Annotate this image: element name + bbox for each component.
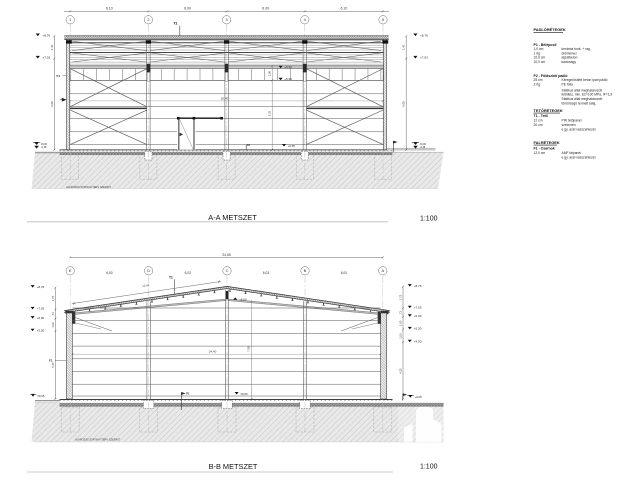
svg-text:1,43: 1,43 — [402, 44, 406, 50]
svg-text:1,00: 1,00 — [398, 320, 402, 326]
svg-text:F1: F1 — [49, 359, 53, 363]
svg-text:,73: ,73 — [51, 312, 55, 316]
svg-text:TETŐRÉTEGEK: TETŐRÉTEGEK — [534, 108, 563, 113]
svg-text:+7,03: +7,03 — [414, 306, 422, 310]
svg-text:24,40: 24,40 — [209, 350, 217, 354]
svg-text:P2 - Földszinti padló: P2 - Földszinti padló — [534, 74, 568, 78]
svg-text:24,65: 24,65 — [222, 253, 231, 257]
svg-text:AMF falpanel: AMF falpanel — [562, 151, 582, 155]
svg-text:B: B — [304, 268, 307, 273]
svg-text:1,00: 1,00 — [398, 333, 402, 339]
svg-text:kavicságy: kavicságy — [562, 60, 577, 64]
svg-text:1,00: 1,00 — [51, 322, 55, 328]
svg-text:feltöltés, min. E2=100 MPa, tF: feltöltés, min. E2=100 MPa, tF=1,9 — [562, 92, 613, 96]
svg-text:1,00: 1,00 — [268, 70, 272, 76]
svg-text:+6,30: +6,30 — [284, 65, 292, 69]
svg-text:6,03: 6,03 — [263, 271, 270, 275]
svg-text:e.gy. acél vázszerkezet: e.gy. acél vázszerkezet — [562, 127, 596, 131]
svg-text:12 cm: 12 cm — [534, 118, 543, 122]
svg-text:ALAPOZÁS STATIKAI TERV SZERINT: ALAPOZÁS STATIKAI TERV SZERINT — [75, 438, 120, 442]
svg-text:A: A — [381, 268, 384, 273]
svg-text:F1: F1 — [57, 74, 61, 78]
svg-text:+0,05: +0,05 — [288, 144, 296, 148]
svg-text:20 cm: 20 cm — [534, 123, 543, 127]
svg-text:4,25: 4,25 — [398, 368, 402, 374]
svg-text:6,08: 6,08 — [50, 101, 54, 107]
svg-text:6,03: 6,03 — [185, 271, 192, 275]
svg-text:+8,76: +8,76 — [37, 285, 45, 289]
svg-text:±0,00: ±0,00 — [240, 392, 247, 396]
svg-text:A-A METSZET: A-A METSZET — [208, 213, 257, 222]
svg-text:6,00: 6,00 — [341, 271, 348, 275]
svg-text:6,00: 6,00 — [106, 271, 113, 275]
svg-text:+6,30: +6,30 — [37, 316, 45, 320]
svg-text:+0,05: +0,05 — [415, 395, 423, 399]
svg-text:B-B METSZET: B-B METSZET — [209, 462, 258, 471]
svg-text:D: D — [147, 268, 150, 273]
svg-text:25 cm: 25 cm — [534, 78, 543, 82]
svg-text:+8,76: +8,76 — [420, 33, 428, 37]
svg-text:-0,38: -0,38 — [420, 146, 426, 149]
svg-text:1:100: 1:100 — [420, 215, 438, 222]
svg-text:,73: ,73 — [398, 311, 402, 315]
svg-text:6.00: 6.00 — [262, 7, 269, 11]
svg-text:2 rtg: 2 rtg — [534, 83, 541, 87]
svg-text:6.10: 6.10 — [106, 7, 113, 11]
svg-text:10,0 cm: 10,0 cm — [534, 60, 546, 64]
svg-text:T1 - Tető: T1 - Tető — [534, 114, 548, 118]
svg-text:T1: T1 — [173, 22, 177, 26]
svg-text:5,25: 5,25 — [268, 110, 272, 116]
svg-text:+5,30: +5,30 — [414, 327, 422, 331]
svg-text:5,25: 5,25 — [51, 362, 55, 368]
svg-text:+5,30: +5,30 — [37, 329, 45, 333]
svg-text:1,73: 1,73 — [398, 294, 402, 300]
svg-text:+6,30: +6,30 — [414, 314, 422, 318]
svg-text:szelemen: szelemen — [562, 123, 576, 127]
svg-text:E: E — [69, 268, 72, 273]
svg-text:PIR tetőpanel: PIR tetőpanel — [562, 118, 582, 122]
svg-text:+8,76: +8,76 — [42, 33, 50, 37]
svg-text:ALAPOZÁS STATIKAI TERV SZERINT: ALAPOZÁS STATIKAI TERV SZERINT — [66, 185, 111, 189]
svg-text:6.00: 6.00 — [184, 7, 191, 11]
svg-text:5: 5 — [382, 17, 384, 22]
svg-text:+8,76: +8,76 — [414, 284, 422, 288]
svg-text:C: C — [226, 268, 229, 273]
svg-text:tömörségű termett talaj,: tömörségű termett talaj, — [562, 102, 597, 106]
svg-text:6.10: 6.10 — [340, 7, 347, 11]
svg-text:12,0 cm: 12,0 cm — [534, 151, 546, 155]
svg-text:6,08: 6,08 — [402, 101, 406, 107]
svg-text:+7,03: +7,03 — [37, 307, 45, 311]
svg-text:+7,03: +7,03 — [420, 56, 428, 60]
svg-text:F1 - Csarnok: F1 - Csarnok — [534, 147, 555, 151]
svg-text:1,73: 1,73 — [51, 295, 55, 301]
svg-text:3: 3 — [226, 17, 228, 22]
svg-text:20,40: 20,40 — [221, 96, 229, 100]
svg-text:Statikus által meghatározott: Statikus által meghatározott — [562, 97, 603, 101]
svg-text:PE fólia: PE fólia — [562, 83, 574, 87]
svg-text:Kéregerősített beton ipari pad: Kéregerősített beton ipari padló — [562, 78, 608, 82]
svg-text:e.gy. acél vázszerkezet: e.gy. acél vázszerkezet — [562, 156, 596, 160]
svg-text:1,43: 1,43 — [50, 44, 54, 50]
svg-text:7,38: 7,38 — [247, 346, 251, 352]
svg-text:1:100: 1:100 — [420, 464, 438, 471]
svg-text:±0,05: ±0,05 — [37, 394, 44, 398]
svg-text:FALRÉTEGEK: FALRÉTEGEK — [534, 140, 560, 145]
svg-text:+7,03: +7,03 — [42, 56, 50, 60]
svg-text:1: 1 — [69, 17, 71, 22]
svg-text:+8,60: +8,60 — [239, 297, 247, 301]
svg-text:-0,38: -0,38 — [41, 146, 47, 149]
svg-text:+4,30: +4,30 — [414, 340, 422, 344]
svg-text:T1: T1 — [169, 275, 173, 279]
svg-text:2: 2 — [147, 17, 149, 22]
svg-text:+5,30: +5,30 — [284, 77, 292, 81]
svg-text:PADLÓRÉTEGEK: PADLÓRÉTEGEK — [534, 27, 566, 32]
